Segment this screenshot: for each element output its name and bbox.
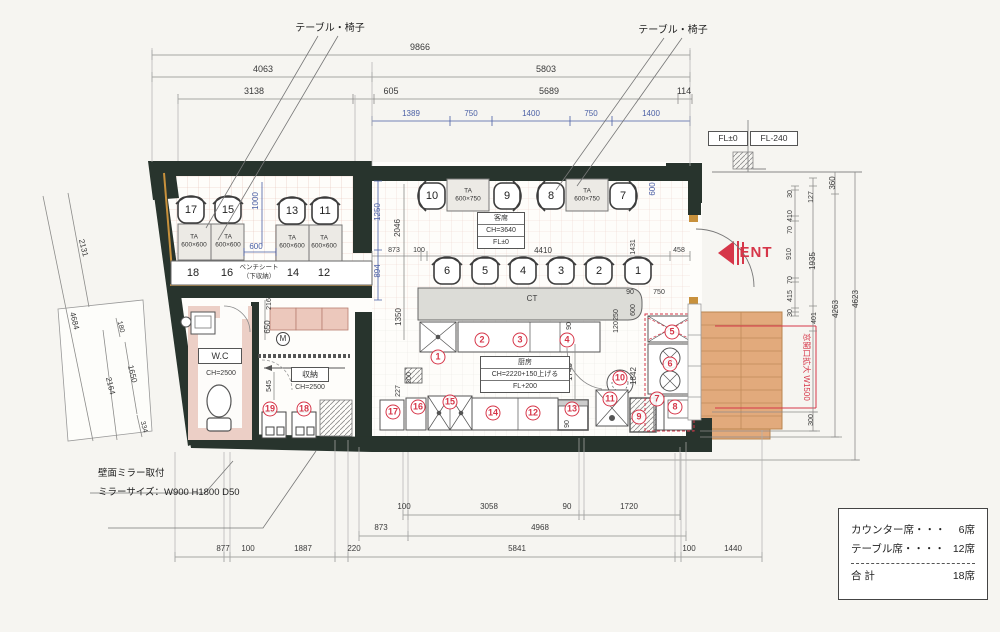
floor-plan-page: 9866406358033138605568911413897501400750… bbox=[0, 0, 1000, 632]
legend-table-value: 12席 bbox=[953, 540, 975, 559]
seat-count-legend: カウンター席・・・ 6席 テーブル席・・・・ 12席 合 計 18席 bbox=[838, 508, 988, 600]
entry-step bbox=[712, 120, 862, 172]
legend-total-label: 合 計 bbox=[851, 567, 875, 586]
guest-room-infobox: 客席 CH=3640 FL±0 bbox=[477, 212, 525, 249]
storage-room-name: 収納 bbox=[292, 368, 328, 381]
legend-counter-row: カウンター席・・・ 6席 bbox=[851, 521, 975, 540]
kitchen-ceiling-height: CH=2220+150上げる bbox=[481, 368, 569, 380]
kitchen-floor-level: FL+200 bbox=[481, 380, 569, 392]
guest-ceiling-height: CH=3640 bbox=[478, 224, 524, 236]
counter bbox=[418, 288, 642, 320]
guest-room-name: 客席 bbox=[478, 213, 524, 224]
wc-room-name: W.C bbox=[199, 349, 241, 363]
legend-table-label: テーブル席・・・・ bbox=[851, 540, 945, 559]
fl-zero-label: FL±0 bbox=[709, 132, 747, 145]
legend-total-row: 合 計 18席 bbox=[851, 567, 975, 586]
kitchen-room-name: 厨房 bbox=[481, 357, 569, 368]
entrance-deck bbox=[700, 312, 782, 439]
guest-floor-level: FL±0 bbox=[478, 236, 524, 248]
legend-counter-label: カウンター席・・・ bbox=[851, 521, 946, 540]
bench-seat bbox=[171, 261, 372, 285]
fl-minus240-label: FL-240 bbox=[751, 132, 797, 145]
storage-infobox: 収納 bbox=[291, 367, 329, 382]
wc-room bbox=[181, 306, 252, 440]
fl-minus240-infobox: FL-240 bbox=[750, 131, 798, 146]
legend-total-value: 18席 bbox=[953, 567, 975, 586]
fl-zero-infobox: FL±0 bbox=[708, 131, 748, 146]
legend-table-row: テーブル席・・・・ 12席 bbox=[851, 540, 975, 559]
wc-infobox: W.C bbox=[198, 348, 242, 364]
legend-counter-value: 6席 bbox=[959, 521, 975, 540]
kitchen-infobox: 厨房 CH=2220+150上げる FL+200 bbox=[480, 356, 570, 393]
legend-divider bbox=[851, 563, 975, 564]
